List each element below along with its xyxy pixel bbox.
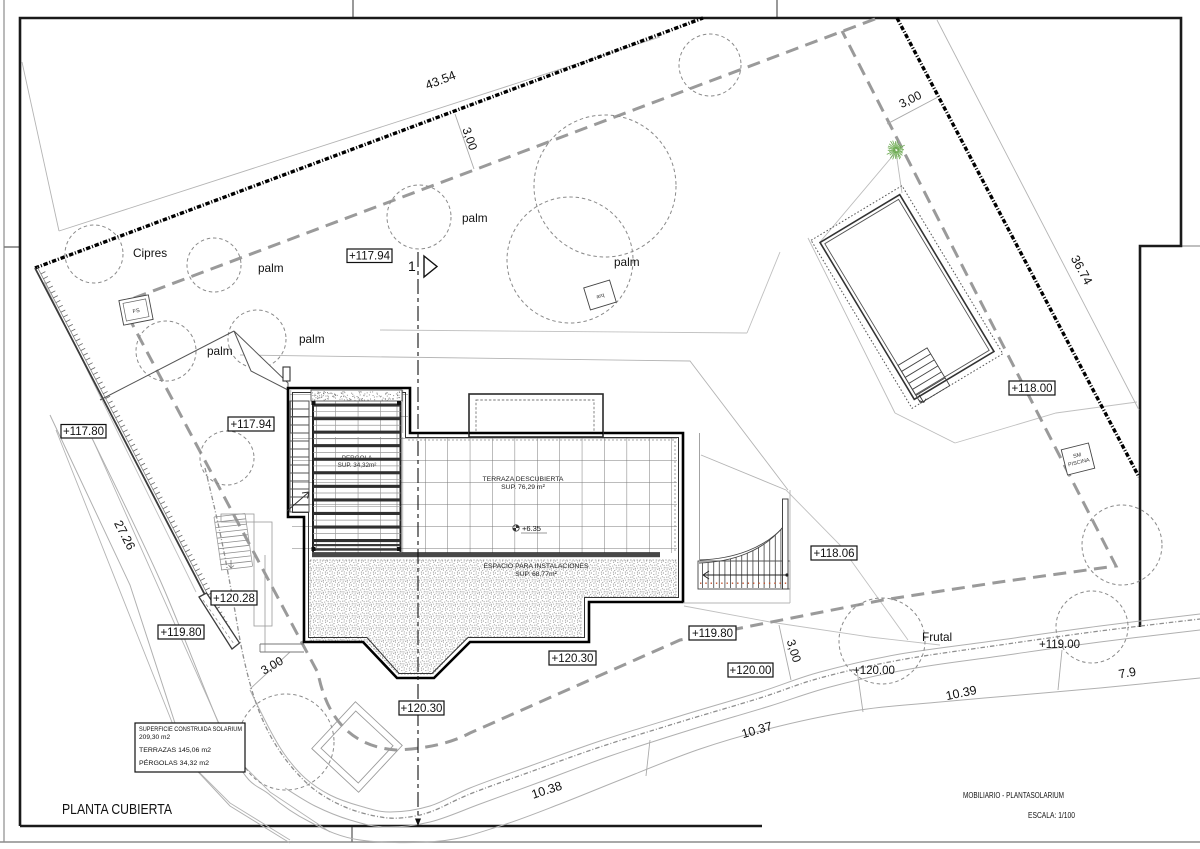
svg-text:+118.00: +118.00: [1011, 383, 1052, 395]
svg-text:+118.06: +118.06: [813, 548, 854, 560]
svg-text:TERRAZA DESCUBIERTA: TERRAZA DESCUBIERTA: [483, 476, 564, 483]
svg-text:+119.80: +119.80: [692, 628, 733, 640]
svg-text:PERGOLA: PERGOLA: [342, 455, 373, 462]
svg-text:PÉRGOLAS 34,32 m2: PÉRGOLAS 34,32 m2: [139, 758, 209, 767]
svg-text:+117.94: +117.94: [349, 250, 391, 262]
svg-text:SUP. 68,77m²: SUP. 68,77m²: [515, 571, 558, 578]
svg-text:1: 1: [408, 258, 416, 274]
svg-text:+120.00: +120.00: [853, 665, 895, 677]
svg-text:palm: palm: [207, 344, 233, 358]
svg-text:+6.35: +6.35: [522, 524, 541, 533]
svg-text:+117.80: +117.80: [63, 426, 104, 438]
svg-text:209,30 m2: 209,30 m2: [139, 734, 170, 741]
svg-text:+119.80: +119.80: [160, 627, 201, 639]
svg-text:+120.00: +120.00: [730, 665, 772, 677]
svg-text:7.9: 7.9: [1118, 665, 1138, 682]
svg-text:+120.30: +120.30: [552, 653, 594, 665]
svg-text:+117.94: +117.94: [230, 419, 272, 431]
svg-text:palm: palm: [614, 255, 640, 269]
svg-text:SUP. 76,29 m²: SUP. 76,29 m²: [501, 484, 545, 491]
svg-text:Frutal: Frutal: [922, 630, 952, 644]
svg-text:SUPERFICIE CONSTRUIDA SOLARIUM: SUPERFICIE CONSTRUIDA SOLARIUM: [139, 726, 242, 733]
svg-text:palm: palm: [462, 211, 488, 225]
svg-text:Cipres: Cipres: [133, 246, 167, 260]
svg-text:PLANTA CUBIERTA: PLANTA CUBIERTA: [62, 801, 172, 818]
svg-text:palm: palm: [258, 261, 284, 275]
svg-text:+120.28: +120.28: [213, 593, 255, 605]
svg-text:SUP. 34,32m²: SUP. 34,32m²: [338, 462, 377, 469]
svg-text:+120.30: +120.30: [401, 703, 443, 715]
svg-text:ESPACIO PARA INSTALACIONES: ESPACIO PARA INSTALACIONES: [483, 563, 588, 570]
svg-text:palm: palm: [299, 332, 325, 346]
svg-text:+119.00: +119.00: [1039, 639, 1080, 651]
svg-text:TERRAZAS 145,06 m2: TERRAZAS 145,06 m2: [139, 747, 211, 754]
svg-text:MOBILIARIO - PLANTASOLARIUM: MOBILIARIO - PLANTASOLARIUM: [963, 791, 1064, 800]
svg-text:ESCALA: 1/100: ESCALA: 1/100: [1028, 811, 1075, 820]
